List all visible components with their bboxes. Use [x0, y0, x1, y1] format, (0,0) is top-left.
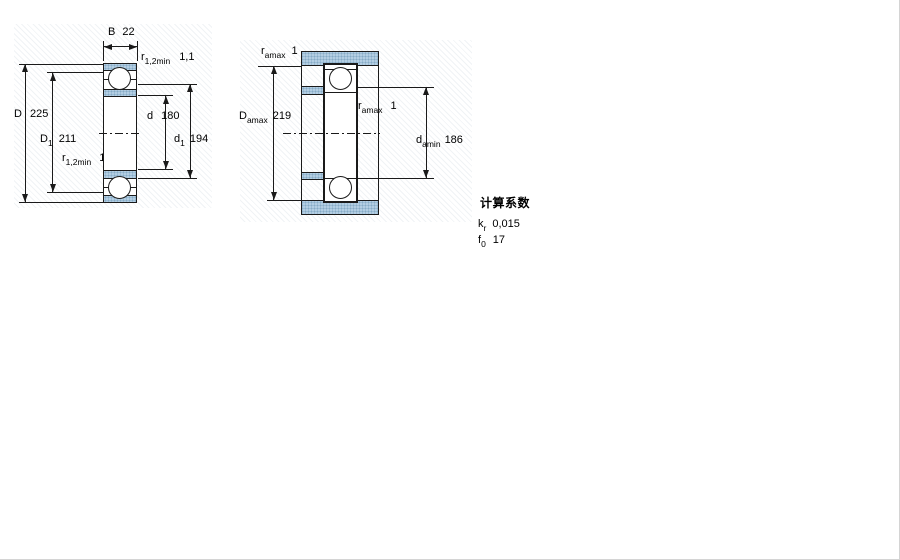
dim-line-D1: [52, 73, 53, 192]
dim-line-d: [165, 96, 166, 169]
factor-value-kr: 0,015: [492, 218, 520, 231]
dim-sub-ramax-top: amax: [265, 50, 286, 60]
bearing-drawing-page: B 22 r1,2min 1,1 D 225 D1 211 r1,2min 1,…: [0, 0, 900, 560]
dim-sub-ramax-mid: amax: [362, 105, 383, 115]
ext-line-D-bottom: [19, 202, 103, 203]
dim-value-B: 22: [122, 26, 134, 39]
groove-land-bottom-right: [131, 187, 136, 188]
groove-land-top-right: [131, 79, 136, 80]
shaft-shoulder-top: [301, 86, 323, 95]
dim-sub-Damax: amax: [247, 115, 268, 125]
calculation-factors-title: 计算系数: [480, 197, 530, 210]
dim-label-B: B 22: [108, 26, 135, 39]
dim-value-D1: 211: [59, 133, 77, 146]
arrowhead-B-left: [104, 44, 112, 50]
dim-label-ramax-top: ramax 1: [261, 45, 298, 58]
dim-sub-r-top: 1,2min: [145, 56, 171, 66]
factor-row-f0: f0 17: [478, 234, 505, 247]
dim-line-damin: [426, 87, 427, 178]
dim-symbol-B: B: [108, 26, 115, 39]
rolling-element-top-right-figure: [329, 67, 352, 90]
factor-sub-f0: 0: [481, 239, 486, 249]
arrowhead-D1-bottom: [50, 184, 56, 192]
arrowhead-Damax-top: [271, 66, 277, 74]
inner-ring-top: [104, 89, 136, 98]
calculation-factors-title-text: 计算系数: [480, 197, 530, 210]
dim-label-D: D 225: [14, 108, 48, 121]
ext-line-D-top: [19, 64, 103, 65]
factor-sub-kr: r: [484, 223, 487, 233]
dim-value-ramax-top: 1: [291, 45, 297, 58]
dim-value-D: 225: [30, 108, 48, 121]
dim-value-Damax: 219: [273, 110, 291, 123]
arrowhead-d-bottom: [163, 161, 169, 169]
dim-line-Damax: [273, 66, 274, 200]
leader-line-ramax-top: [258, 66, 301, 67]
arrowhead-d-top: [163, 96, 169, 104]
arrowhead-damin-bottom: [423, 170, 429, 178]
arrowhead-d1-top: [187, 84, 193, 92]
arrowhead-D-bottom: [22, 194, 28, 202]
factor-value-f0: 17: [493, 234, 505, 247]
dim-value-r-top: 1,1: [179, 51, 194, 64]
rolling-element-bottom-right-figure: [329, 176, 352, 199]
ext-line-d-bottom: [138, 169, 173, 170]
dim-value-damin: 186: [445, 134, 463, 147]
axis-centerline-left-figure: [99, 133, 141, 134]
ext-line-D1-bottom: [47, 192, 103, 193]
dim-label-d1: d1 194: [174, 133, 208, 146]
arrowhead-Damax-bottom: [271, 192, 277, 200]
arrowhead-d1-bottom: [187, 170, 193, 178]
dim-label-Damax: Damax 219: [239, 110, 291, 123]
dim-line-D: [25, 64, 26, 202]
ring-edge-line-bottom-outer: [325, 201, 356, 202]
dim-label-r12min-top: r1,2min 1,1: [141, 51, 194, 64]
arrowhead-B-right: [129, 44, 137, 50]
rolling-element-top: [108, 67, 131, 90]
dim-label-damin: damin 186: [416, 134, 463, 147]
dim-symbol-D1: D: [40, 133, 48, 146]
axis-centerline-right-figure: [283, 133, 380, 134]
ext-line-d1-bottom: [138, 178, 197, 179]
dim-value-d1: 194: [190, 133, 208, 146]
dim-label-ramax-mid: ramax 1: [358, 100, 397, 113]
arrowhead-damin-top: [423, 87, 429, 95]
dim-value-d: 180: [161, 110, 179, 123]
rolling-element-bottom: [108, 176, 131, 199]
dim-sub-D1: 1: [48, 138, 53, 148]
arrowhead-D1-top: [50, 73, 56, 81]
dim-symbol-d: d: [147, 110, 153, 123]
arrowhead-D-top: [22, 64, 28, 72]
dim-value-ramax-mid: 1: [390, 100, 396, 113]
ring-edge-line-top-inner: [325, 92, 356, 93]
ext-line-damin-bottom: [357, 178, 434, 179]
dim-label-D1: D1 211: [40, 133, 76, 146]
dim-symbol-D: D: [14, 108, 22, 121]
dim-symbol-Damax: D: [239, 110, 247, 123]
dim-label-d: d 180: [147, 110, 179, 123]
shaft-shoulder-bottom: [301, 172, 323, 181]
factor-row-kr: kr 0,015: [478, 218, 520, 231]
ext-line-damin-top: [357, 87, 434, 88]
dim-line-d1: [190, 84, 191, 178]
dim-sub-damin: amin: [422, 139, 440, 149]
dim-sub-d1: 1: [180, 138, 185, 148]
dim-sub-r-bottom: 1,2min: [66, 157, 92, 167]
